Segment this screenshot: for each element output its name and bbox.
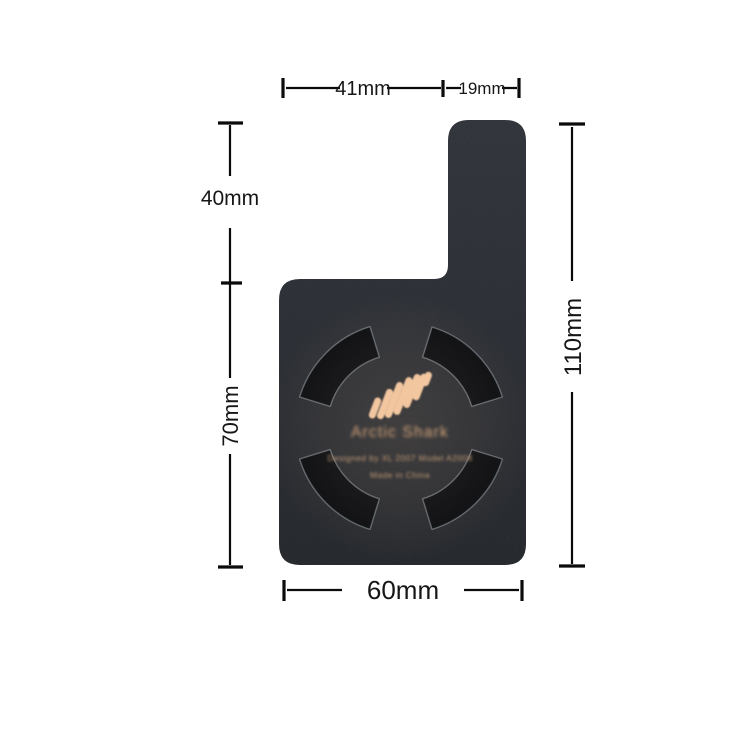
dim-label-110mm: 110mm [560,298,587,376]
product-dimension-diagram: Arctic Shark Designed by XL 2007 Model A… [0,0,750,750]
dimension-top: 41mm 19mm [283,78,519,100]
dim-label-40mm: 40mm [201,187,259,210]
origin-text: Made in China [370,470,430,480]
dimension-right: 110mm [559,124,587,566]
dim-label-19mm: 19mm [458,79,505,98]
dimension-bottom: 60mm [284,575,522,605]
diagram-canvas: Arctic Shark Designed by XL 2007 Model A… [0,0,750,750]
product-back-plate: Arctic Shark Designed by XL 2007 Model A… [265,120,535,565]
brand-name-text: Arctic Shark [351,424,449,441]
dimension-left: 40mm 70mm [201,123,259,567]
dim-label-70mm: 70mm [218,385,243,446]
dim-label-41mm: 41mm [335,78,391,100]
product-info-text: Designed by XL 2007 Model A2008 [327,453,472,463]
dim-label-60mm: 60mm [367,575,439,605]
